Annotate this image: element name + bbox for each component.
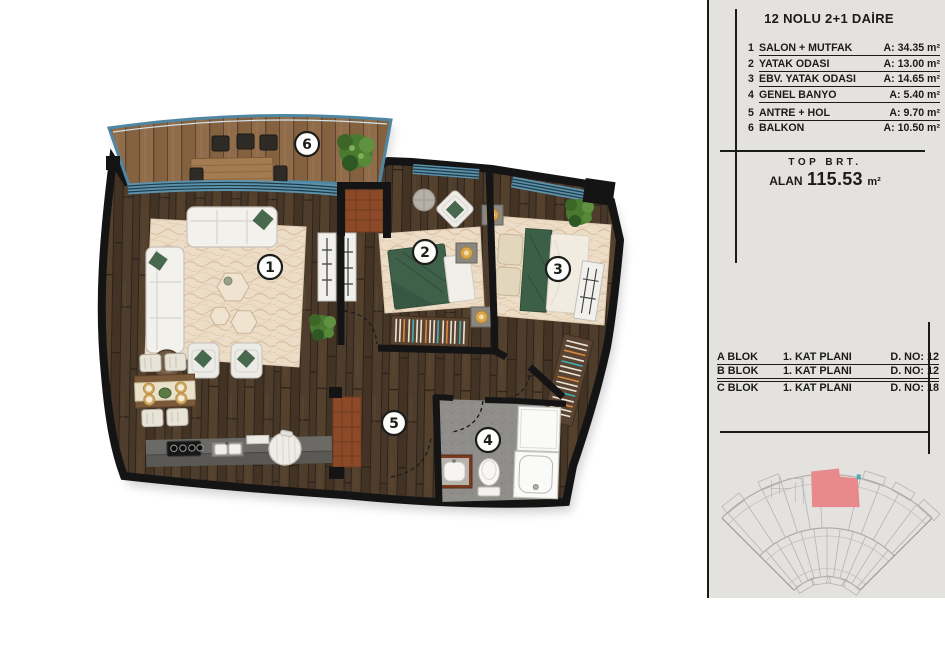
site-divider [720, 431, 930, 433]
table-row: 5 ANTRE + HOLA: 9.70 m² [748, 107, 940, 121]
room-marker-5: 5 [382, 411, 406, 435]
row-area: A: 10.50 m² [883, 122, 940, 134]
alan-value: 115.53 [807, 169, 863, 189]
svg-text:1: 1 [265, 260, 275, 276]
unit-title: 12 NOLU 2+1 DAİRE [727, 11, 931, 26]
block-name: A BLOK [717, 351, 781, 364]
block-table: A BLOK 1. KAT PLANI D. NO: 12 B BLOK 1. … [717, 351, 939, 395]
alan-unit: m² [867, 176, 880, 188]
kitchen-shelf [247, 435, 269, 443]
block-row: B BLOK 1. KAT PLANI D. NO: 12 [717, 365, 939, 382]
block-name: C BLOK [717, 382, 781, 395]
wall-lamp [471, 307, 492, 327]
alan-label: ALAN [769, 174, 802, 188]
row-area: A: 34.35 m² [883, 42, 940, 54]
row-label: GENEL BANYO [759, 89, 837, 101]
wall-lamp [456, 243, 477, 263]
room-marker-1: 1 [258, 255, 282, 279]
svg-text:2: 2 [420, 245, 430, 261]
shower [513, 406, 560, 498]
row-number: 5 [748, 107, 759, 121]
row-number: 1 [748, 42, 759, 56]
row-number: 6 [748, 122, 759, 135]
row-area: A: 5.40 m² [889, 89, 940, 101]
armchair [188, 343, 219, 378]
block-plan: 1. KAT PLANI [781, 382, 867, 395]
table-row: 1 SALON + MUTFAKA: 34.35 m² [748, 42, 940, 56]
floor-plan-page: 1 2 3 4 5 6 12 NOLU 2+1 DAİRE 1 SALON + … [0, 0, 945, 668]
row-label: ANTRE + HOL [759, 107, 830, 119]
row-label: YATAK ODASI [759, 58, 829, 70]
row-area: A: 13.00 m² [883, 58, 940, 70]
vanity-sink [437, 455, 472, 488]
table-row: 2 YATAK ODASIA: 13.00 m² [748, 58, 940, 72]
total-gross-label: TOP BRT. [709, 157, 941, 168]
summary-divider [720, 150, 925, 152]
table-row: 4 GENEL BANYOA: 5.40 m² [748, 89, 940, 103]
svg-text:6: 6 [302, 137, 312, 153]
room-marker-2: 2 [413, 240, 437, 264]
room-marker-6: 6 [295, 132, 319, 156]
row-area: A: 14.65 m² [883, 73, 940, 85]
info-panel: 12 NOLU 2+1 DAİRE 1 SALON + MUTFAKA: 34.… [707, 0, 945, 598]
highlighted-unit[interactable] [811, 469, 860, 508]
table-row: 6 BALKONA: 10.50 m² [748, 122, 940, 135]
entry-vestibule-mat [345, 190, 383, 232]
balcony-plant [337, 134, 375, 171]
entry-door-leaf [333, 397, 361, 467]
block-plan: 1. KAT PLANI [781, 351, 867, 364]
row-number: 4 [748, 89, 759, 103]
table-row: 3 EBV. YATAK ODASIA: 14.65 m² [748, 73, 940, 87]
svg-text:5: 5 [389, 416, 399, 432]
plant [309, 314, 336, 341]
site-key-plan [712, 458, 942, 596]
pouf [413, 189, 435, 211]
site-vertical-rule [928, 322, 930, 454]
row-number: 3 [748, 73, 759, 87]
room-marker-3: 3 [546, 257, 570, 281]
total-area: ALAN 115.53 m² [709, 169, 941, 190]
toilet [478, 459, 500, 497]
block-row: A BLOK 1. KAT PLANI D. NO: 12 [717, 351, 939, 365]
row-area: A: 9.70 m² [889, 107, 940, 119]
sofa-left [146, 247, 184, 353]
highlight-corner-mark [857, 474, 861, 479]
room-area-table: 1 SALON + MUTFAKA: 34.35 m² 2 YATAK ODAS… [748, 41, 940, 135]
block-row: C BLOK 1. KAT PLANI D. NO: 18 [717, 382, 939, 395]
row-label: SALON + MUTFAK [759, 42, 852, 54]
block-name: B BLOK [717, 365, 781, 378]
radiator-panel [318, 233, 336, 301]
block-plan: 1. KAT PLANI [781, 365, 867, 378]
svg-text:4: 4 [483, 433, 493, 449]
sofa-top [187, 207, 277, 247]
legend-vertical-rule [735, 9, 737, 263]
wardrobe-hangers [391, 316, 470, 348]
cooktop [167, 441, 204, 457]
row-label: EBV. YATAK ODASI [759, 73, 856, 85]
row-number: 2 [748, 58, 759, 72]
room-marker-4: 4 [476, 428, 500, 452]
floor-plan-drawing: 1 2 3 4 5 6 [0, 0, 710, 668]
kitchen-sink [212, 441, 243, 456]
svg-text:3: 3 [553, 262, 563, 278]
armchair [231, 343, 262, 378]
row-label: BALKON [759, 122, 804, 134]
